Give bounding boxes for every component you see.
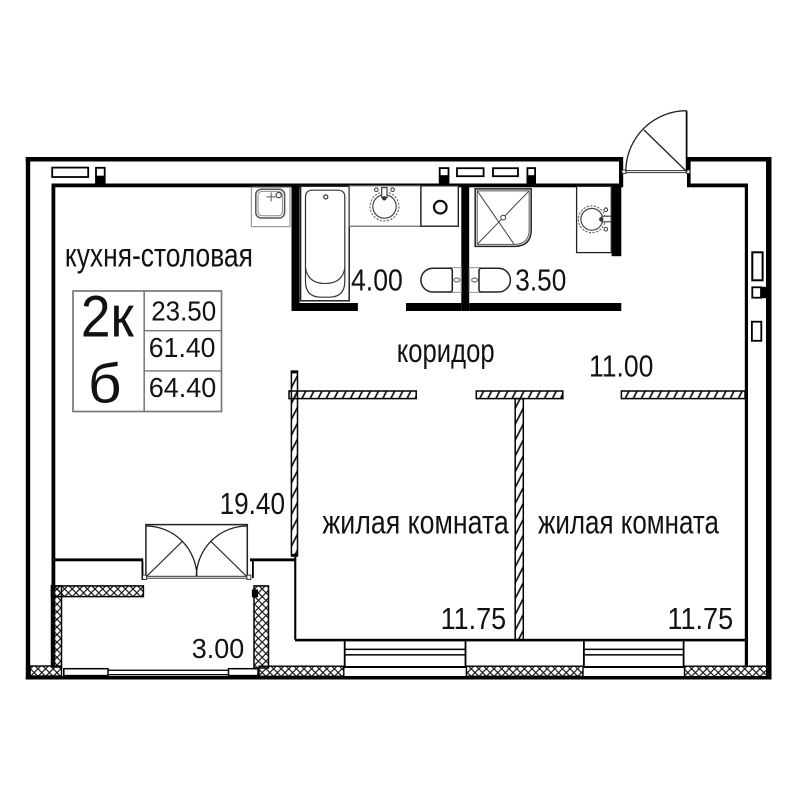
svg-text:коридор: коридор bbox=[397, 333, 495, 370]
svg-text:4.00: 4.00 bbox=[351, 263, 403, 297]
svg-text:64.40: 64.40 bbox=[149, 372, 217, 403]
svg-text:11.75: 11.75 bbox=[441, 602, 507, 636]
svg-text:11.00: 11.00 bbox=[589, 349, 653, 383]
svg-text:3.00: 3.00 bbox=[192, 633, 244, 664]
svg-text:23.50: 23.50 bbox=[151, 295, 216, 326]
svg-text:б: б bbox=[88, 352, 122, 414]
svg-text:жилая комната: жилая комната bbox=[538, 505, 719, 542]
svg-text:кухня-столовая: кухня-столовая bbox=[65, 237, 253, 274]
svg-text:19.40: 19.40 bbox=[220, 487, 285, 521]
svg-text:жилая комната: жилая комната bbox=[322, 505, 509, 542]
svg-text:2к: 2к bbox=[81, 285, 135, 350]
svg-text:3.50: 3.50 bbox=[515, 263, 566, 297]
svg-text:61.40: 61.40 bbox=[149, 332, 216, 363]
svg-text:11.75: 11.75 bbox=[668, 602, 734, 636]
